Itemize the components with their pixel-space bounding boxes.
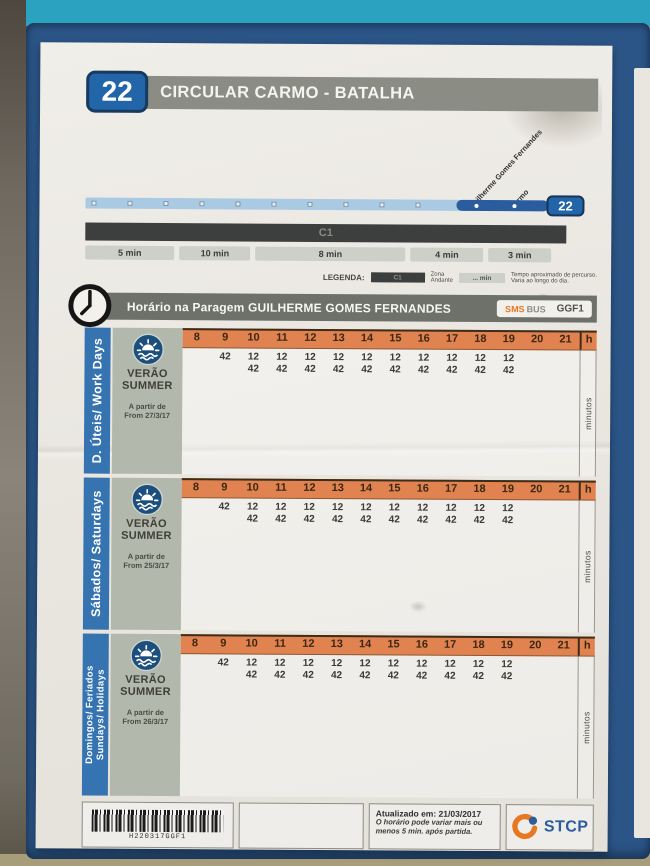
stcp-logo-icon <box>511 813 539 841</box>
minutes-axis: minutos <box>577 657 595 799</box>
hour-cell: 15 <box>380 481 408 498</box>
valid-from-line: A partir de <box>122 708 168 717</box>
minute-column: 1242 <box>265 655 294 797</box>
legend-zone-text: Zona Andante <box>431 271 453 284</box>
day-label: D. Úteis/ Work Days <box>90 338 105 464</box>
route-number: 22 <box>101 76 132 108</box>
minute-value: 42 <box>438 365 466 377</box>
minute-value: 12 <box>494 353 522 365</box>
minute-column: 1242 <box>463 656 492 798</box>
minute-value: 42 <box>352 514 380 526</box>
minute-column: 1242 <box>409 350 438 476</box>
minute-column: 1242 <box>464 500 493 632</box>
minute-value: 12 <box>352 502 380 514</box>
minute-value: 12 <box>494 503 522 515</box>
hour-unit-cell: h <box>578 639 595 656</box>
minute-column: 42 <box>210 348 239 474</box>
hour-cell: 20 <box>522 482 550 499</box>
minute-column: 1242 <box>379 499 408 631</box>
minute-value: 42 <box>211 351 239 363</box>
minute-value: 12 <box>438 353 466 365</box>
route-line <box>85 198 461 211</box>
minute-value: 42 <box>351 670 379 682</box>
minute-column: 1242 <box>493 500 522 632</box>
minute-value: 42 <box>268 364 296 376</box>
minute-value: 42 <box>267 514 295 526</box>
minute-column: 1242 <box>408 500 437 632</box>
hour-cell: 14 <box>352 481 380 498</box>
minute-value: 42 <box>466 365 494 377</box>
hour-cell: 8 <box>181 636 209 653</box>
valid-from: A partir de From 26/3/17 <box>122 708 168 726</box>
legend: LEGENDA: C1 Zona Andante ... min Tempo a… <box>85 269 597 286</box>
minute-value: 12 <box>379 658 407 670</box>
stop-dot <box>415 203 420 208</box>
minute-value: 12 <box>493 659 521 671</box>
minute-value: 12 <box>353 352 381 364</box>
minute-column: 1242 <box>237 654 266 796</box>
season-col: VERÃO SUMMER A partir de From 26/3/17 <box>110 634 181 796</box>
minute-value: 12 <box>409 353 437 365</box>
minute-column: 1242 <box>267 349 296 475</box>
hour-cell: 14 <box>353 331 381 348</box>
valid-from-line: A partir de <box>123 552 169 561</box>
display-case-edge <box>0 0 28 866</box>
minute-value: 42 <box>379 670 407 682</box>
hour-cell: 8 <box>182 480 210 497</box>
day-bar: Domingos/ FeriadosSundays/ Holidays <box>82 634 109 796</box>
route-terminal-badge: 22 <box>546 195 584 216</box>
stcp-box: STCP <box>506 804 594 851</box>
hour-cell: 16 <box>409 482 437 499</box>
poster: 22 CIRCULAR CARMO - BATALHA Guilherme Go… <box>82 71 599 851</box>
hour-cell: 12 <box>296 331 324 348</box>
hour-cell: 19 <box>495 332 523 349</box>
minutes-axis-label: minutos <box>581 711 591 744</box>
minute-column: 42 <box>209 498 238 630</box>
minute-value: 42 <box>294 670 322 682</box>
minute-value: 42 <box>210 501 238 513</box>
time-segment: 10 min <box>179 246 250 260</box>
hour-cell: 18 <box>465 482 493 499</box>
stop-dot <box>474 203 478 207</box>
season-line: VERÃO <box>121 518 172 530</box>
legend-label: LEGENDA: <box>323 272 365 281</box>
hour-cell: 21 <box>549 638 577 655</box>
hour-cell: 10 <box>238 480 266 497</box>
minute-value: 12 <box>322 658 350 670</box>
minute-value: 12 <box>238 501 266 513</box>
minute-column <box>550 350 579 476</box>
minute-column: 1242 <box>437 350 466 476</box>
valid-from: A partir de From 27/3/17 <box>124 402 170 420</box>
footer-spacer-box <box>239 802 364 849</box>
smsbus-label: BUS <box>527 304 546 314</box>
minute-value: 42 <box>437 515 465 527</box>
time-segment: 4 min <box>410 248 483 262</box>
minute-column: 1242 <box>266 499 295 631</box>
route-header: 22 CIRCULAR CARMO - BATALHA <box>86 71 598 116</box>
minute-value: 12 <box>237 657 265 669</box>
season-line: SUMMER <box>121 530 172 542</box>
zone-bar: C1 <box>85 223 566 244</box>
minute-value: 42 <box>380 514 408 526</box>
minute-value: 42 <box>408 515 436 527</box>
hour-cell: 17 <box>436 638 464 655</box>
minute-value: 12 <box>466 353 494 365</box>
sun-waves-icon <box>131 333 164 366</box>
hour-cell: 10 <box>239 330 267 347</box>
minute-column <box>520 656 549 798</box>
minute-value: 12 <box>437 503 465 515</box>
minute-value: 42 <box>295 514 323 526</box>
minute-value: 42 <box>323 514 351 526</box>
season-line: SUMMER <box>122 380 173 392</box>
minute-column: 1242 <box>294 499 323 631</box>
clock-icon <box>67 282 113 328</box>
minute-column: 42 <box>208 654 237 796</box>
minute-column: 1242 <box>239 348 268 474</box>
valid-from-line: From 27/3/17 <box>124 411 170 420</box>
hour-cell: 12 <box>295 481 323 498</box>
minute-value: 42 <box>238 513 266 525</box>
minute-column: 1242 <box>350 655 379 797</box>
timetable-section-sundays-holidays: Domingos/ FeriadosSundays/ Holidays VERÃ… <box>82 634 595 799</box>
minute-value: 42 <box>465 515 493 527</box>
minute-column <box>181 498 210 630</box>
hour-cell: 15 <box>381 331 409 348</box>
minute-value: 12 <box>267 502 295 514</box>
segment-row: 5 min10 min8 min4 min3 min <box>85 246 551 263</box>
barcode <box>92 809 224 832</box>
minute-column: 1242 <box>492 656 521 798</box>
hour-header: 89101112131415161718192021h <box>183 328 597 351</box>
legend-time-text-line: Varia ao longo do dia. <box>511 278 597 285</box>
hour-cell: 13 <box>323 481 351 498</box>
hour-cell: 17 <box>438 332 466 349</box>
route-number-badge: 22 <box>86 71 148 113</box>
hour-cell: 19 <box>493 638 521 655</box>
hour-cell: 11 <box>266 637 294 654</box>
minute-value: 12 <box>266 658 294 670</box>
hour-cell: 20 <box>521 638 549 655</box>
minute-value: 12 <box>464 659 492 671</box>
minute-column <box>550 500 579 632</box>
stop-header-bar: Horário na Paragem GUILHERME GOMES FERNA… <box>93 293 597 323</box>
minute-column: 1242 <box>238 498 267 630</box>
minute-column: 1242 <box>380 349 409 475</box>
minute-column <box>180 654 209 796</box>
minute-column: 1242 <box>378 655 407 797</box>
smsbus-badge: SMS BUS GGF1 <box>497 300 592 318</box>
hour-cell: 19 <box>494 482 522 499</box>
timetable-sheet: 22 CIRCULAR CARMO - BATALHA Guilherme Go… <box>36 42 613 851</box>
minutes-grid: 4212421242124212421242124212421242124212… <box>182 348 597 477</box>
day-label-line: Sundays/ Holidays <box>95 665 107 764</box>
minute-value: 12 <box>239 351 267 363</box>
hour-cell: 18 <box>464 638 492 655</box>
day-label-line: Sábados/ Saturdays <box>89 490 104 617</box>
updated-line: menos 5 min. após partida. <box>376 827 494 836</box>
minute-column: 1242 <box>323 499 352 631</box>
hour-cell: 9 <box>210 480 238 497</box>
minute-value: 42 <box>237 669 265 681</box>
season-col: VERÃO SUMMER A partir de From 25/3/17 <box>111 478 182 630</box>
stop-header-title: Horário na Paragem GUILHERME GOMES FERNA… <box>127 299 451 315</box>
stop-header: Horário na Paragem GUILHERME GOMES FERNA… <box>85 293 597 323</box>
minute-value: 42 <box>464 671 492 683</box>
minute-column: 1242 <box>465 350 494 476</box>
minutes-axis-label: minutos <box>583 397 593 430</box>
hour-cell: 12 <box>294 637 322 654</box>
section-grid: 89101112131415161718192021h 421242124212… <box>180 634 595 799</box>
minute-value: 12 <box>436 659 464 671</box>
photo-of-bus-stop-timetable: 22 CIRCULAR CARMO - BATALHA Guilherme Go… <box>0 0 650 866</box>
minute-value: 42 <box>407 671 435 683</box>
minute-column <box>182 348 211 474</box>
time-segment: 3 min <box>488 248 551 262</box>
hour-cell: 13 <box>324 331 352 348</box>
stop-dot <box>271 202 276 207</box>
minute-value: 12 <box>351 658 379 670</box>
minutes-grid: 4212421242124212421242124212421242124212… <box>180 654 595 799</box>
day-label: Domingos/ FeriadosSundays/ Holidays <box>84 665 107 764</box>
minute-value: 42 <box>324 364 352 376</box>
day-label-line: Domingos/ Feriados <box>84 665 96 764</box>
section-grid: 89101112131415161718192021h 421242124212… <box>181 478 596 633</box>
minute-column <box>521 500 550 632</box>
timetable: D. Úteis/ Work Days VERÃO SUMMER A parti… <box>82 328 597 799</box>
zone-label: C1 <box>319 227 333 239</box>
minute-value: 12 <box>381 352 409 364</box>
minute-column: 1242 <box>351 499 380 631</box>
minute-value: 42 <box>409 365 437 377</box>
legend-time-text: Tempo aproximado de percurso. Varia ao l… <box>511 272 597 286</box>
minute-value: 42 <box>322 670 350 682</box>
minute-value: 12 <box>294 658 322 670</box>
minute-value: 12 <box>324 352 352 364</box>
stop-label: Guilherme Gomes Fernandes <box>467 128 544 211</box>
minute-column: 1242 <box>436 500 465 632</box>
minute-column: 1242 <box>352 349 381 475</box>
minute-value: 12 <box>408 503 436 515</box>
hour-cell: 13 <box>323 637 351 654</box>
minute-value: 42 <box>494 365 522 377</box>
day-label-line: D. Úteis/ Work Days <box>90 338 105 464</box>
minutes-axis: minutos <box>578 501 596 633</box>
minute-value: 12 <box>408 659 436 671</box>
valid-from: A partir de From 25/3/17 <box>123 552 169 570</box>
hour-cell: 16 <box>409 332 437 349</box>
route-name: CIRCULAR CARMO - BATALHA <box>160 82 415 103</box>
season-line: VERÃO <box>120 674 171 686</box>
stop-dot <box>163 201 168 206</box>
minute-value: 12 <box>295 502 323 514</box>
barcode-box: H220317GGF1 <box>82 802 234 849</box>
minute-value: 42 <box>266 670 294 682</box>
time-segment: 8 min <box>255 247 405 262</box>
stop-dot <box>307 202 312 207</box>
smsbus-label: SMS <box>505 304 525 314</box>
hour-cell: 18 <box>466 332 494 349</box>
footer: H220317GGF1 Atualizado em: 21/03/2017 O … <box>82 802 594 851</box>
minute-column: 1242 <box>407 656 436 798</box>
route-name-bar: CIRCULAR CARMO - BATALHA <box>140 75 598 111</box>
day-bar: Sábados/ Saturdays <box>83 478 110 630</box>
season-label: VERÃO SUMMER <box>121 518 172 542</box>
valid-from-line: From 25/3/17 <box>123 561 169 570</box>
day-bar: D. Úteis/ Work Days <box>84 328 111 474</box>
minutes-axis: minutos <box>579 351 597 477</box>
minute-value: 12 <box>380 502 408 514</box>
hour-cell: 14 <box>351 637 379 654</box>
season-col: VERÃO SUMMER A partir de From 27/3/17 <box>112 328 183 474</box>
minute-column: 1242 <box>295 349 324 475</box>
hour-cell: 20 <box>523 332 551 349</box>
minute-value: 42 <box>493 515 521 527</box>
stop-dot <box>379 202 384 207</box>
hour-cell: 11 <box>268 331 296 348</box>
hour-cell: 21 <box>551 332 579 349</box>
season-line: SUMMER <box>120 686 171 698</box>
minutes-axis-label: minutos <box>582 550 592 583</box>
updated-box: Atualizado em: 21/03/2017 O horário pode… <box>369 803 501 850</box>
season-label: VERÃO SUMMER <box>120 674 171 698</box>
timetable-section-workdays: D. Úteis/ Work Days VERÃO SUMMER A parti… <box>84 328 597 477</box>
hour-cell: 8 <box>183 330 211 347</box>
section-grid: 89101112131415161718192021h 421242124212… <box>182 328 597 477</box>
hour-cell: 11 <box>267 481 295 498</box>
minute-value: 42 <box>209 657 237 669</box>
minute-column <box>522 350 551 476</box>
adjacent-timetable-sheet <box>634 68 650 838</box>
minute-value: 42 <box>493 671 521 683</box>
valid-from-line: From 26/3/17 <box>122 717 168 726</box>
stop-dot <box>127 201 132 206</box>
stop-dot <box>512 204 516 208</box>
barcode-text: H220317GGF1 <box>129 832 186 840</box>
minute-value: 42 <box>381 364 409 376</box>
hour-header: 89101112131415161718192021h <box>181 634 595 657</box>
stcp-wordmark: STCP <box>544 818 589 836</box>
minutes-grid: 4212421242124212421242124212421242124212… <box>181 498 596 633</box>
season-label: VERÃO SUMMER <box>122 368 173 392</box>
stop-dot <box>343 202 348 207</box>
timetable-section-saturdays: Sábados/ Saturdays VERÃO SUMMER A partir… <box>83 478 596 633</box>
sun-waves-icon <box>129 639 162 672</box>
hour-cell: 9 <box>211 330 239 347</box>
legend-zone-text-line: Andante <box>431 278 453 285</box>
minute-column: 1242 <box>494 350 523 476</box>
hour-cell: 9 <box>209 636 237 653</box>
hour-cell: 17 <box>437 482 465 499</box>
legend-time-chip: ... min <box>459 273 505 283</box>
stop-dot <box>235 201 240 206</box>
hour-header: 89101112131415161718192021h <box>182 478 596 501</box>
season-line: VERÃO <box>122 368 173 380</box>
hour-cell: 10 <box>237 636 265 653</box>
minute-value: 42 <box>296 364 324 376</box>
legend-zone-chip: C1 <box>371 272 425 282</box>
time-segment: 5 min <box>85 246 174 261</box>
hour-unit-cell: h <box>580 333 597 350</box>
route-diagram: Guilherme Gomes Fernandes Carmo 22 C1 5 … <box>85 143 598 268</box>
minute-value: 12 <box>268 352 296 364</box>
stop-dot <box>199 201 204 206</box>
minute-value: 12 <box>465 503 493 515</box>
minute-value: 12 <box>323 502 351 514</box>
day-label: Sábados/ Saturdays <box>89 490 104 617</box>
stop-dot <box>91 201 96 206</box>
valid-from-line: A partir de <box>124 402 170 411</box>
minute-column: 1242 <box>293 655 322 797</box>
minute-value: 42 <box>353 364 381 376</box>
hour-cell: 21 <box>550 482 578 499</box>
minute-column: 1242 <box>322 655 351 797</box>
hour-unit-cell: h <box>579 483 596 500</box>
minute-column <box>549 656 578 798</box>
stop-code: GGF1 <box>557 303 584 314</box>
hour-cell: 16 <box>408 638 436 655</box>
minute-column: 1242 <box>324 349 353 475</box>
minute-value: 42 <box>436 671 464 683</box>
minute-value: 42 <box>239 363 267 375</box>
hour-cell: 15 <box>379 637 407 654</box>
sun-waves-icon <box>130 483 163 516</box>
route-line-active <box>456 200 548 212</box>
minute-column: 1242 <box>435 656 464 798</box>
minute-value: 12 <box>296 352 324 364</box>
